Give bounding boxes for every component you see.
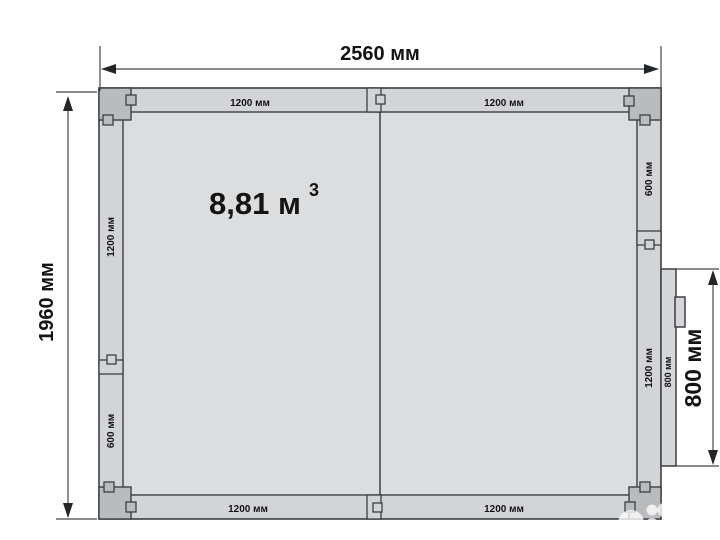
avito-logo-icon	[646, 518, 658, 530]
arrow-down-icon	[708, 450, 718, 465]
arrow-left-icon	[101, 64, 116, 74]
left-lower-panel-label: 600 мм	[106, 414, 117, 448]
bottom-left-panel-label: 1200 мм	[228, 504, 268, 515]
joint-notch-icon	[624, 96, 634, 106]
door-opening-label: 800 мм	[680, 329, 706, 408]
top-right-panel-label: 1200 мм	[484, 98, 524, 109]
watermark-brand-text: Avito	[674, 510, 720, 538]
avito-logo-icon	[647, 505, 658, 516]
right-lower-panel-label: 1200 мм	[644, 348, 655, 388]
joint-notch-icon	[640, 115, 650, 125]
overall-width-label: 2560 мм	[340, 43, 420, 65]
joint-notch-icon	[645, 240, 654, 249]
volume-value: 8,81 м	[209, 186, 301, 221]
joint-notch-icon	[640, 482, 650, 492]
bottom-right-panel-label: 1200 мм	[484, 504, 524, 515]
chamber-plan-diagram: 1200 мм 1200 мм 1200 мм 1200 мм 1200 мм …	[0, 0, 720, 540]
avito-logo-icon	[618, 510, 644, 536]
top-left-panel-label: 1200 мм	[230, 98, 270, 109]
left-upper-panel-label: 1200 мм	[106, 217, 117, 257]
door-handle	[675, 297, 685, 327]
arrow-down-icon	[63, 503, 73, 518]
joint-notch-icon	[373, 503, 382, 512]
arrow-up-icon	[63, 96, 73, 111]
right-upper-panel-label: 600 мм	[644, 162, 655, 196]
overall-height-label: 1960 мм	[36, 262, 58, 342]
joint-notch-icon	[103, 115, 113, 125]
door-panel-label: 800 мм	[663, 356, 673, 387]
avito-logo-icon	[658, 503, 673, 518]
joint-notch-icon	[126, 502, 136, 512]
volume-exponent: 3	[309, 180, 319, 200]
joint-notch-icon	[376, 95, 385, 104]
arrow-right-icon	[644, 64, 659, 74]
listing-image: 1200 мм 1200 мм 1200 мм 1200 мм 1200 мм …	[0, 0, 720, 540]
joint-notch-icon	[104, 482, 114, 492]
arrow-up-icon	[708, 270, 718, 285]
joint-notch-icon	[107, 355, 116, 364]
joint-notch-icon	[126, 95, 136, 105]
